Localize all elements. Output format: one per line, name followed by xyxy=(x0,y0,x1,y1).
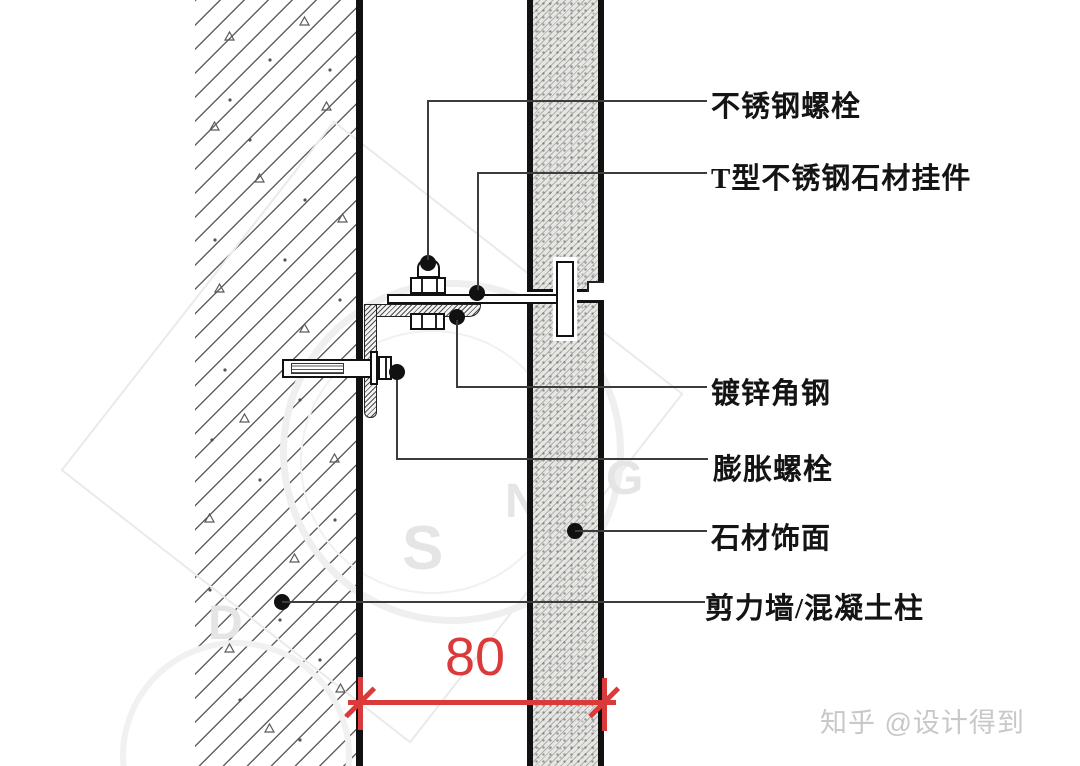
leader-line xyxy=(477,173,479,290)
stone-cladding-detail-drawing: S N G D xyxy=(0,0,1080,766)
stone-joint-notch xyxy=(587,281,604,300)
expansion-bolt-washer xyxy=(370,351,378,385)
hex-nut-upper xyxy=(410,277,446,294)
leader-line xyxy=(427,100,707,102)
label-expansion-bolt: 膨胀螺栓 xyxy=(713,446,833,488)
t-hanger-vertical-bar xyxy=(556,261,574,337)
concrete-wall-hatch xyxy=(195,0,357,766)
dimension-value: 80 xyxy=(425,630,525,684)
notch-edge xyxy=(587,281,604,283)
label-t-type-stone-hanger: T型不锈钢石材挂件 xyxy=(711,155,971,197)
leader-line xyxy=(396,380,398,459)
leader-line xyxy=(427,101,429,260)
leader-line xyxy=(282,601,705,603)
leader-line xyxy=(456,320,458,387)
leader-line xyxy=(575,530,707,532)
watermark-letter: S xyxy=(402,518,443,580)
leader-dot-expansion-bolt xyxy=(389,364,405,380)
notch-edge xyxy=(587,281,589,292)
stone-panel-upper xyxy=(527,0,604,292)
label-galvanized-angle-steel: 镀锌角钢 xyxy=(711,370,831,412)
expansion-bolt-threads xyxy=(291,363,344,374)
leader-line xyxy=(477,172,707,174)
dimension-line xyxy=(348,700,616,705)
label-stone-finish: 石材饰面 xyxy=(711,515,831,557)
hex-nut-lower xyxy=(410,313,445,330)
watermark-letter: G xyxy=(606,455,643,503)
leader-line xyxy=(396,458,708,460)
site-credit-watermark: 知乎 @设计得到 xyxy=(820,701,1025,740)
wall-face-line xyxy=(356,0,363,766)
stone-panel-lower xyxy=(527,300,604,766)
label-stainless-steel-bolt: 不锈钢螺栓 xyxy=(711,83,861,125)
label-shear-wall-concrete-column: 剪力墙/混凝土柱 xyxy=(705,585,924,627)
leader-line xyxy=(456,386,707,388)
